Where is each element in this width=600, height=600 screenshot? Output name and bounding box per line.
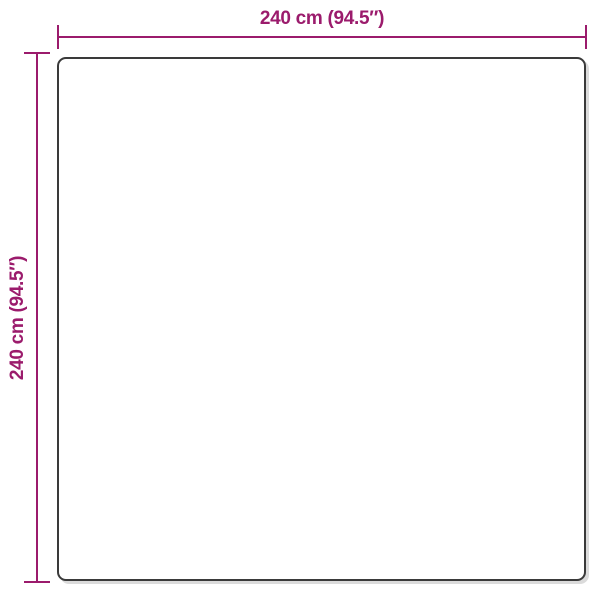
height-dimension-line (36, 52, 38, 583)
height-dimension-label: 240 cm (94.5″) (7, 255, 29, 379)
height-dimension-label-area: 240 cm (94.5″) (0, 52, 36, 583)
width-dimension-end-tick (585, 25, 587, 49)
diagram-canvas: 240 cm (94.5″) 240 cm (94.5″) (0, 0, 600, 600)
height-dimension-end-tick (24, 581, 50, 583)
product-outline (57, 57, 586, 581)
width-dimension-label: 240 cm (94.5″) (57, 8, 587, 30)
width-dimension-line (57, 36, 587, 38)
width-dimension-start-tick (57, 25, 59, 49)
height-dimension-start-tick (24, 52, 50, 54)
